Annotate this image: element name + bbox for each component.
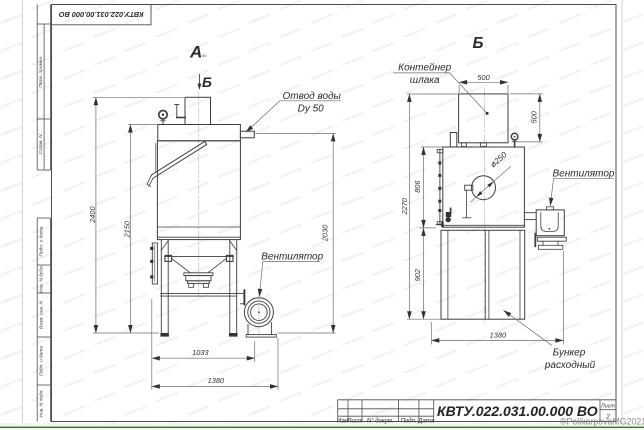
svg-text:500: 500	[530, 110, 539, 123]
svg-text:1380: 1380	[490, 331, 507, 340]
svg-text:Справ. N: Справ. N	[38, 134, 44, 155]
svg-text:Подп. и дата: Подп. и дата	[39, 346, 45, 376]
svg-text:Вентилятор: Вентилятор	[553, 168, 615, 179]
svg-text:шлака: шлака	[410, 75, 440, 86]
svg-text:Dy 50: Dy 50	[298, 104, 325, 115]
svg-text:2270: 2270	[400, 197, 409, 215]
svg-text:КВТУ.022.031.00.000 ВО: КВТУ.022.031.00.000 ВО	[59, 10, 144, 19]
svg-text:Бункер: Бункер	[553, 347, 586, 358]
svg-text:Подп.: Подп.	[401, 419, 417, 425]
svg-text:Перв. примен.: Перв. примен.	[38, 56, 44, 88]
svg-text:Контейнер: Контейнер	[398, 62, 451, 73]
svg-text:Отвод воды: Отвод воды	[282, 91, 341, 102]
svg-text:Лист: Лист	[600, 403, 615, 409]
svg-text:1380: 1380	[208, 376, 225, 385]
svg-text:©PolikarpovaMG2021: ©PolikarpovaMG2021	[560, 416, 644, 426]
svg-text:Лист: Лист	[346, 419, 362, 425]
svg-text:806: 806	[413, 180, 422, 193]
svg-text:2150: 2150	[123, 220, 132, 238]
svg-text:500: 500	[477, 73, 490, 82]
svg-text:1033: 1033	[192, 348, 209, 357]
svg-text:Подп. и дата: Подп. и дата	[39, 226, 45, 256]
svg-text:го: го	[202, 53, 207, 58]
svg-text:Б: Б	[473, 35, 484, 52]
svg-text:Инв. N дубл.: Инв. N дубл.	[39, 265, 45, 293]
svg-text:Инв. N подл.: Инв. N подл.	[39, 389, 45, 417]
svg-text:2030: 2030	[321, 224, 330, 242]
svg-text:расходный: расходный	[544, 360, 596, 371]
svg-text:Б: Б	[202, 74, 212, 90]
svg-text:902: 902	[413, 269, 422, 281]
svg-text:Дата: Дата	[417, 419, 434, 425]
svg-text:2400: 2400	[88, 205, 97, 223]
svg-text:А: А	[189, 42, 202, 61]
svg-text:N° докум.: N° докум.	[367, 419, 394, 425]
svg-text:Взам. инв. N: Взам. инв. N	[39, 301, 45, 329]
